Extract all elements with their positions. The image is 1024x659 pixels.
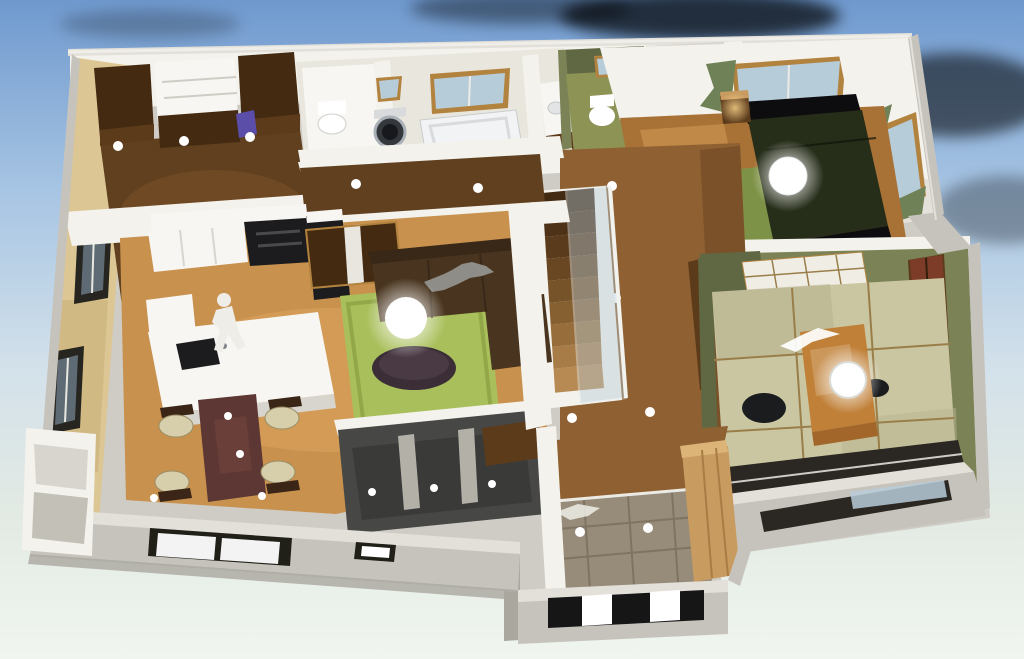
downlight	[473, 183, 483, 193]
render-stage	[0, 0, 1024, 659]
corner-closet-bump	[22, 428, 96, 556]
downlight	[488, 480, 496, 488]
downlight	[258, 492, 266, 500]
bath-window-mullion	[469, 76, 470, 106]
bump-shelf-lower	[32, 492, 88, 544]
small-window-pane	[361, 546, 390, 558]
porch-stripe	[650, 590, 680, 622]
washer-drum	[382, 124, 398, 140]
ceiling-sphere-lamp	[769, 157, 807, 195]
downlight	[245, 132, 255, 142]
shelf-unit-base	[158, 110, 240, 148]
entry	[536, 426, 740, 596]
downlight	[368, 488, 376, 496]
downlight	[150, 494, 158, 502]
chair-seat	[265, 407, 299, 429]
toilet2-tank	[590, 94, 614, 108]
pendant-lamp	[830, 362, 866, 398]
chair-seat	[261, 461, 295, 483]
downlight	[643, 523, 653, 533]
light-reflection	[224, 412, 232, 420]
dark-terrace	[334, 400, 546, 534]
downlight	[575, 527, 585, 537]
cloud	[60, 10, 240, 38]
downlight	[113, 141, 123, 151]
window-mullion	[788, 65, 789, 102]
bump-shelf-upper	[34, 444, 88, 490]
downlight	[645, 407, 655, 417]
front-window-pane	[220, 538, 280, 564]
floor-chair	[742, 393, 786, 423]
downlight	[567, 413, 577, 423]
toilet2-bowl	[589, 106, 615, 126]
floor-lamp-sphere	[385, 297, 427, 339]
chair-seat	[159, 415, 193, 437]
downlight	[430, 484, 438, 492]
porch-stripe	[582, 594, 612, 626]
light-reflection	[236, 450, 244, 458]
table-sheen	[214, 416, 252, 474]
utility-window-glass	[379, 79, 399, 99]
lamp-glow	[719, 92, 751, 124]
toilet-bowl	[318, 114, 346, 134]
downlight	[351, 179, 361, 189]
front-window-pane	[156, 533, 216, 560]
downlight	[179, 136, 189, 146]
person-silhouette-head	[217, 293, 231, 307]
floorplan-3d-render	[0, 0, 1024, 659]
